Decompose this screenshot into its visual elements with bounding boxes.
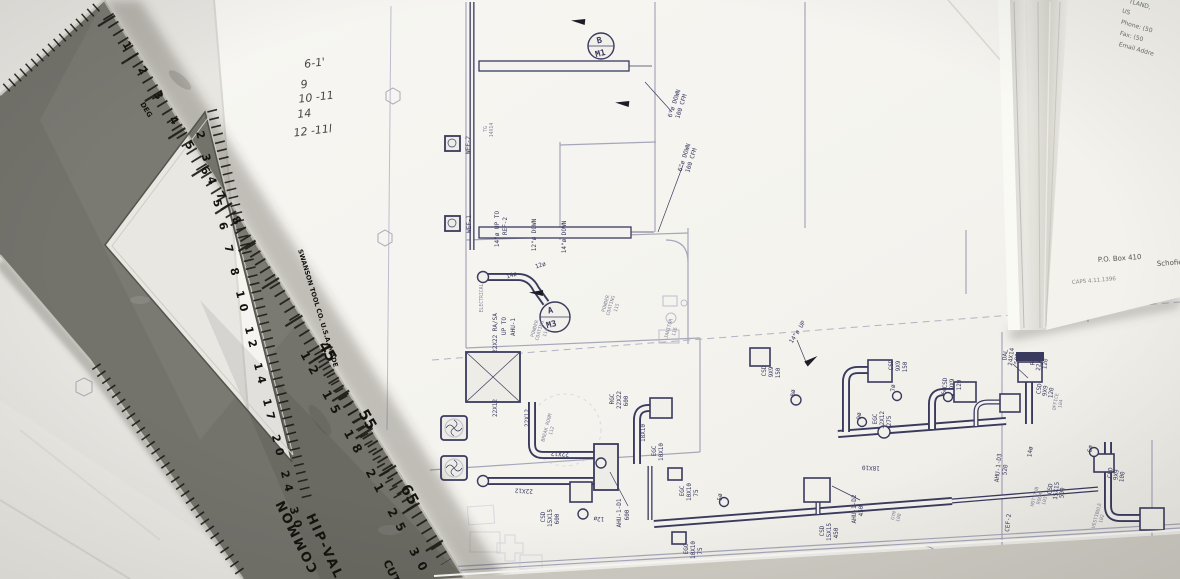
scene-canvas: 22X22 RA/SA UP TO AHU-1 A M3 B M1 6"ø DO… — [0, 0, 1180, 579]
table-edges — [0, 0, 1180, 579]
photo-blueprint-scene: 22X22 RA/SA UP TO AHU-1 A M3 B M1 6"ø DO… — [0, 0, 1180, 579]
